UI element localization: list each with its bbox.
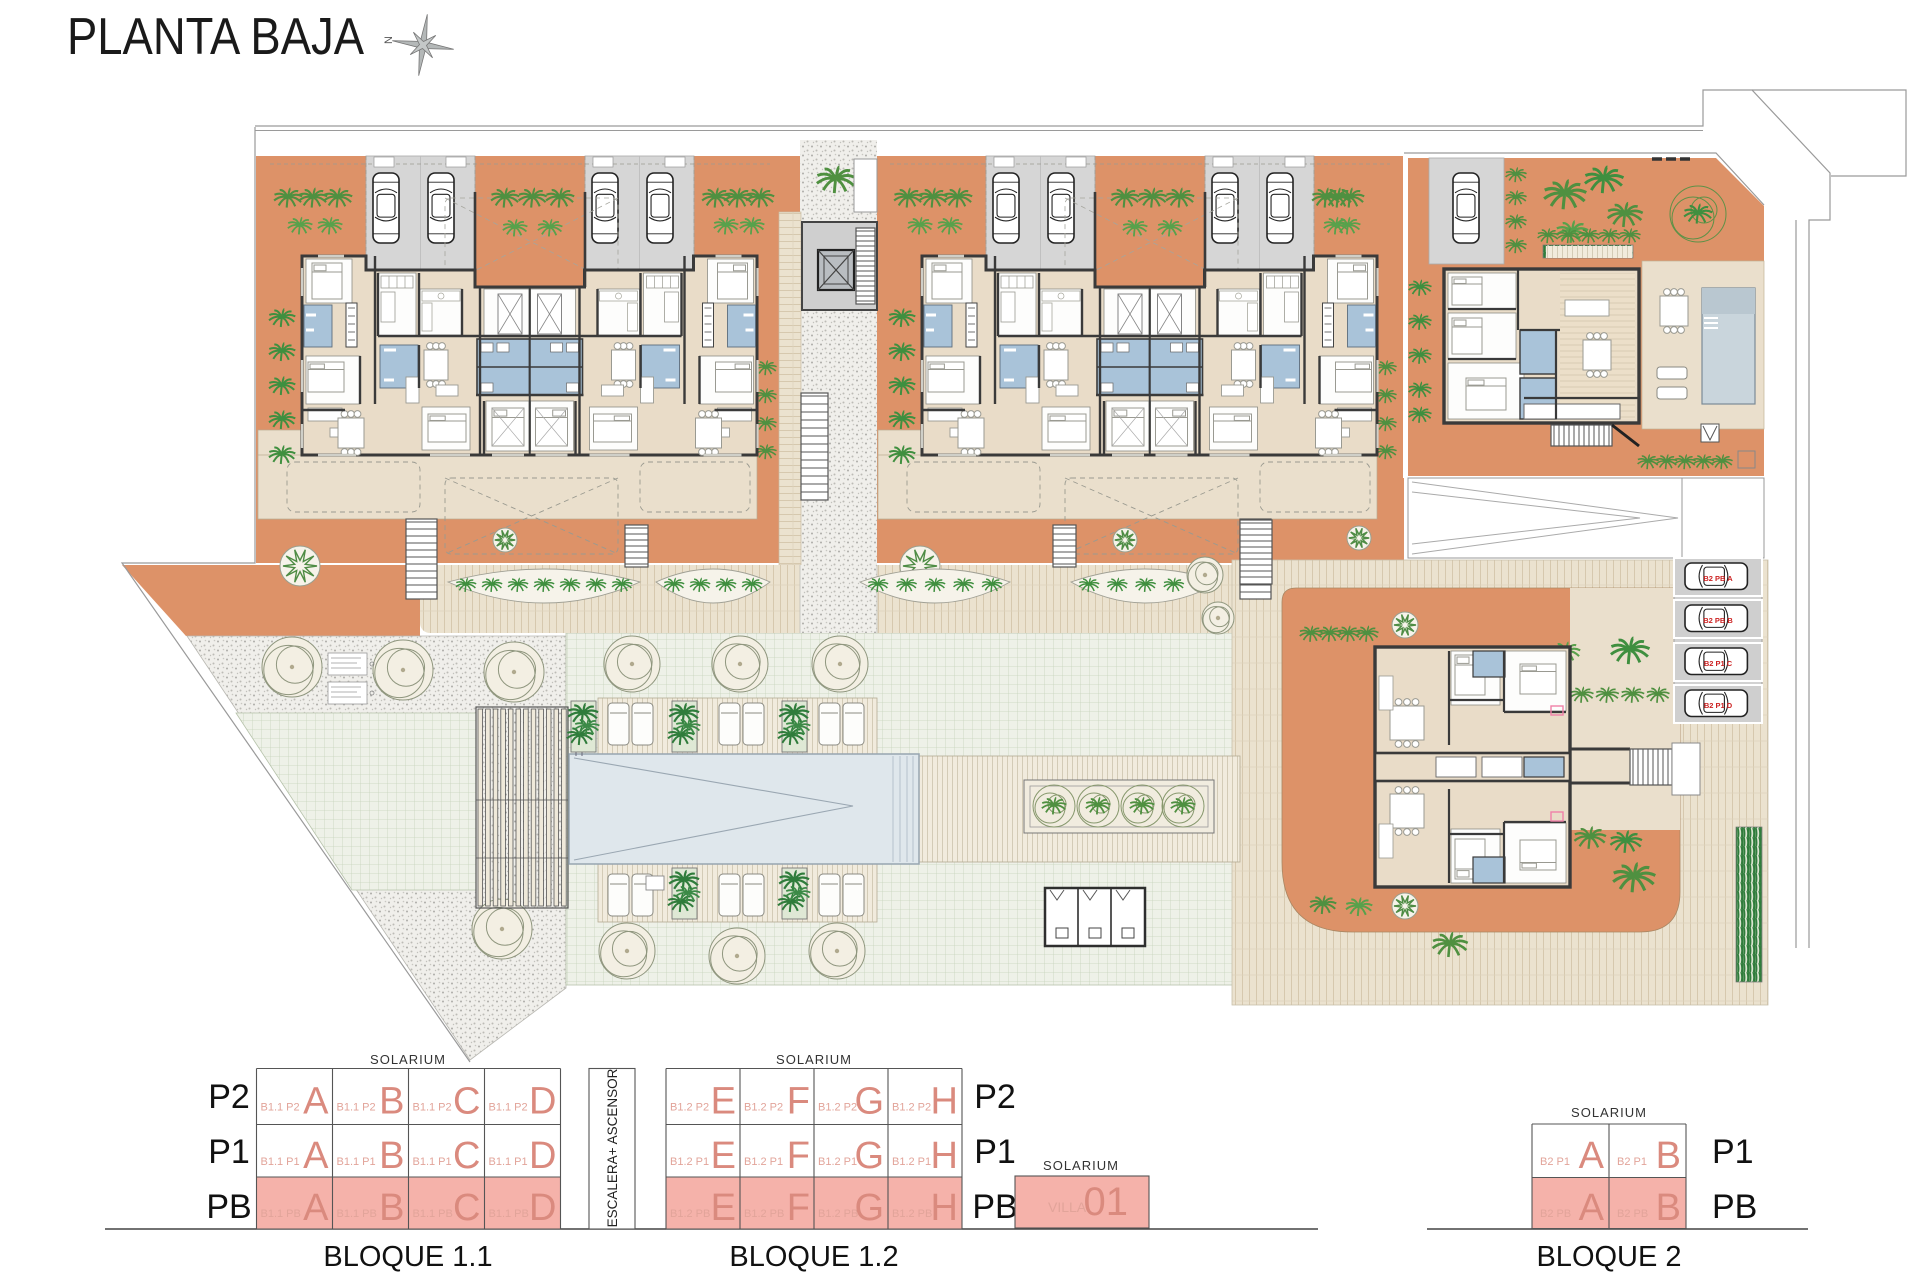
svg-text:E: E (711, 1081, 736, 1123)
svg-text:D: D (529, 1135, 556, 1177)
svg-text:C: C (453, 1081, 480, 1123)
svg-text:B1.2 P1: B1.2 P1 (892, 1156, 931, 1168)
svg-text:P2: P2 (974, 1078, 1016, 1116)
svg-text:A: A (1579, 1187, 1605, 1229)
svg-text:F: F (787, 1187, 810, 1229)
svg-text:F: F (787, 1135, 810, 1177)
svg-text:B1.1 P2: B1.1 P2 (413, 1102, 452, 1114)
svg-text:B1.2 P2: B1.2 P2 (744, 1102, 783, 1114)
svg-text:PLANTA BAJA: PLANTA BAJA (67, 8, 364, 66)
svg-text:B: B (379, 1135, 404, 1177)
svg-text:G: G (854, 1187, 884, 1229)
svg-text:P2: P2 (208, 1078, 250, 1116)
svg-text:B1.2 P2: B1.2 P2 (818, 1102, 857, 1114)
svg-text:E: E (711, 1135, 736, 1177)
svg-text:G: G (854, 1081, 884, 1123)
svg-text:H: H (931, 1081, 958, 1123)
svg-text:A: A (303, 1135, 329, 1177)
svg-text:B2 PB: B2 PB (1540, 1208, 1571, 1220)
svg-text:B1.2 PB: B1.2 PB (892, 1208, 932, 1220)
svg-text:B1.2 PB: B1.2 PB (818, 1208, 858, 1220)
svg-text:G: G (854, 1135, 884, 1177)
svg-text:B2 P1: B2 P1 (1540, 1156, 1570, 1168)
svg-text:H: H (931, 1135, 958, 1177)
svg-text:PB: PB (972, 1188, 1017, 1226)
svg-text:B1.2 P1: B1.2 P1 (818, 1156, 857, 1168)
svg-text:B1.1 P1: B1.1 P1 (337, 1156, 376, 1168)
svg-text:B1.2 P1: B1.2 P1 (670, 1156, 709, 1168)
svg-text:B1.1 P2: B1.1 P2 (489, 1102, 528, 1114)
svg-text:B1.1 P1: B1.1 P1 (413, 1156, 452, 1168)
svg-text:SOLARIUM: SOLARIUM (776, 1052, 852, 1067)
svg-text:A: A (1579, 1135, 1605, 1177)
svg-text:D: D (529, 1081, 556, 1123)
svg-text:B1.1 P2: B1.1 P2 (261, 1102, 300, 1114)
svg-text:H: H (931, 1187, 958, 1229)
svg-text:01: 01 (1084, 1180, 1129, 1224)
svg-text:N: N (383, 36, 395, 44)
svg-text:PB: PB (1712, 1188, 1757, 1226)
svg-text:B: B (1656, 1135, 1681, 1177)
svg-text:B: B (379, 1187, 404, 1229)
svg-text:P1: P1 (974, 1133, 1016, 1171)
svg-text:B: B (1656, 1187, 1681, 1229)
svg-text:C: C (453, 1135, 480, 1177)
svg-text:B2 P1 C: B2 P1 C (1704, 659, 1733, 668)
svg-text:B2 PB: B2 PB (1617, 1208, 1648, 1220)
svg-text:BLOQUE 1.2: BLOQUE 1.2 (729, 1241, 898, 1273)
svg-text:B1.2 P2: B1.2 P2 (892, 1102, 931, 1114)
svg-text:B1.1 PB: B1.1 PB (261, 1208, 301, 1220)
svg-text:SOLARIUM: SOLARIUM (1043, 1158, 1119, 1173)
svg-text:B1.2 P2: B1.2 P2 (670, 1102, 709, 1114)
svg-text:F: F (787, 1081, 810, 1123)
svg-text:SOLARIUM: SOLARIUM (1571, 1105, 1647, 1120)
svg-text:B1.2 P1: B1.2 P1 (744, 1156, 783, 1168)
svg-text:B1.1 P2: B1.1 P2 (337, 1102, 376, 1114)
svg-text:A: A (303, 1081, 329, 1123)
svg-text:B: B (379, 1081, 404, 1123)
svg-text:C: C (453, 1187, 480, 1229)
svg-text:VILLA: VILLA (1048, 1199, 1087, 1215)
svg-text:A: A (303, 1187, 329, 1229)
svg-text:B1.2 PB: B1.2 PB (670, 1208, 710, 1220)
svg-text:B2 P1: B2 P1 (1617, 1156, 1647, 1168)
svg-text:SOLARIUM: SOLARIUM (370, 1052, 446, 1067)
svg-text:BLOQUE 2: BLOQUE 2 (1536, 1241, 1681, 1273)
svg-text:B1.2 PB: B1.2 PB (744, 1208, 784, 1220)
svg-text:BLOQUE 1.1: BLOQUE 1.1 (323, 1241, 492, 1273)
svg-text:E: E (711, 1187, 736, 1229)
svg-text:B2 P1 D: B2 P1 D (1704, 701, 1733, 710)
svg-text:B2 PB A: B2 PB A (1703, 574, 1733, 583)
svg-text:B1.1 P1: B1.1 P1 (261, 1156, 300, 1168)
svg-text:P1: P1 (1712, 1133, 1754, 1171)
svg-text:ESCALERA+ ASCENSOR: ESCALERA+ ASCENSOR (605, 1068, 620, 1227)
svg-text:D: D (529, 1187, 556, 1229)
svg-text:B2 PB B: B2 PB B (1703, 616, 1733, 625)
svg-text:B1.1 P1: B1.1 P1 (489, 1156, 528, 1168)
svg-text:B1.1 PB: B1.1 PB (337, 1208, 377, 1220)
svg-text:P1: P1 (208, 1133, 250, 1171)
svg-text:B1.1 PB: B1.1 PB (413, 1208, 453, 1220)
svg-text:B1.1 PB: B1.1 PB (489, 1208, 529, 1220)
svg-text:PB: PB (206, 1188, 251, 1226)
